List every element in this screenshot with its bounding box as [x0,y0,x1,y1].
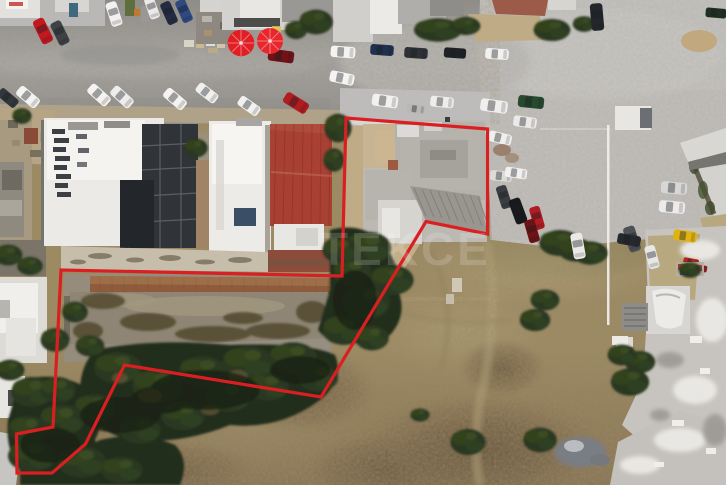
svg-text:TEKCE: TEKCE [320,223,491,275]
